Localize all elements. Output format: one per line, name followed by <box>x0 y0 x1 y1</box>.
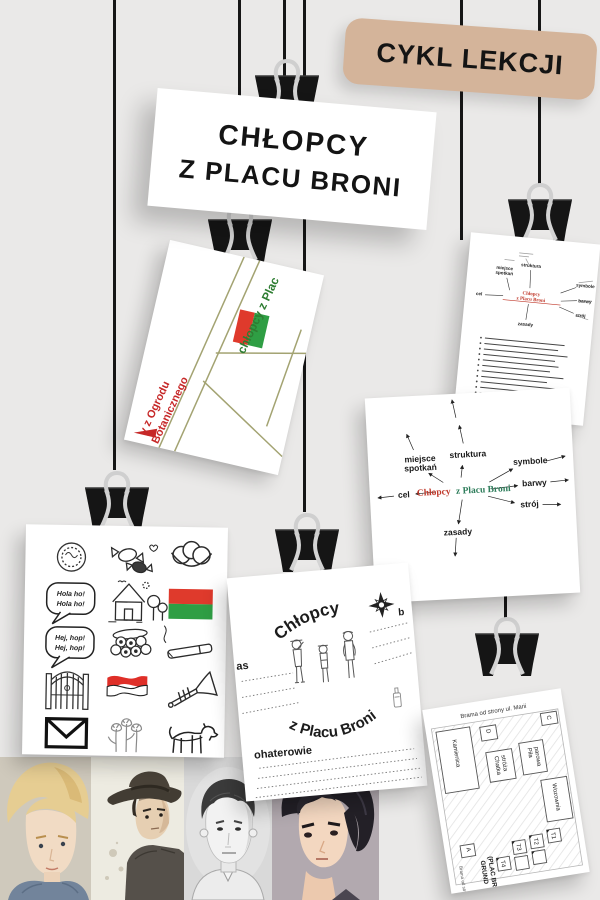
street-sketch: chłopcy z Plac y z Ogrodu Botanicznego <box>124 240 324 475</box>
compass-rose-icon <box>367 591 395 619</box>
blond-boy-portrait <box>0 757 91 900</box>
candies-icon <box>111 544 158 574</box>
trumpet-icon <box>163 672 217 709</box>
mindmap-spotkan: spotkań <box>495 270 513 277</box>
flag-red-green-icon <box>168 589 213 620</box>
poster-canvas: { "badge": { "label": "CYKL LEKCJI", "bg… <box>0 0 600 900</box>
badge-label: CYKL LEKCJI <box>375 37 564 81</box>
woodpile-icon <box>111 628 152 658</box>
worksheet-czas-label: as <box>236 660 249 673</box>
worksheet-letter-b: b <box>398 607 405 618</box>
dog-icon <box>169 723 217 754</box>
boy-with-hat-portrait <box>91 757 184 900</box>
svg-text:Chłopcy: Chłopcy <box>268 598 343 644</box>
worksheet-card: Chłopcy z Placu Broni <box>227 562 428 801</box>
eggs-nest-icon <box>171 541 211 566</box>
star-center-green: z Placu Broni <box>456 484 512 497</box>
worksheet-arc-top: Chłopcy <box>268 598 343 644</box>
mindmap-zasady: zasady <box>518 321 534 327</box>
worksheet-arc-bottom: z Placu Broni <box>285 706 381 745</box>
worksheet-bohaterowie-label: ohaterowie <box>254 745 313 762</box>
mindmap-symbole: symbole <box>576 283 595 290</box>
star-spotkan: spotkań <box>404 462 437 474</box>
lesson-cycle-badge: CYKL LEKCJI <box>342 17 598 100</box>
mindmap-struktura: struktura <box>521 262 542 269</box>
title-card: CHŁOPCY Z PLACU BRONI <box>147 88 436 230</box>
mindmap-stroj: strój <box>575 313 585 319</box>
plan-card: Brama od strony ul. Marii Kamienica D C … <box>422 688 589 894</box>
envelope-icon <box>46 719 86 748</box>
speech-hej-line1: Hej, hop! <box>55 635 86 643</box>
cigarette-icon <box>164 626 213 660</box>
house-icon <box>108 581 167 623</box>
star-cel: cel <box>398 489 410 500</box>
star-barwy: barwy <box>522 477 547 488</box>
star-struktura: struktura <box>449 448 487 460</box>
medal-icon <box>57 543 85 571</box>
title-line-2: Z PLACU BRONI <box>178 153 403 203</box>
boys-illustration <box>290 631 358 685</box>
svg-text:Chłopcy z Placu Broni: Chłopcy z Placu Broni <box>417 484 512 499</box>
star-center-red: Chłopcy <box>417 487 452 499</box>
mindmap-barwy: barwy <box>578 298 592 304</box>
star-symbole: symbole <box>513 455 548 467</box>
gate-icon <box>46 672 89 710</box>
street-sketch-card: chłopcy z Plac y z Ogrodu Botanicznego <box>124 240 324 475</box>
bottle-sketch-icon <box>393 688 402 708</box>
star-zasady: zasady <box>443 526 472 537</box>
flag-red-white-icon <box>107 675 147 696</box>
speech-hola-line2: Hola ho! <box>57 601 86 608</box>
speech-hola-line1: Hola ho! <box>57 591 86 598</box>
svg-text:z Placu Broni: z Placu Broni <box>285 706 381 745</box>
speech-hej-line2: Hej, hop! <box>55 645 86 653</box>
speech-bubble-hola-icon: Hola ho! Hola ho! <box>46 583 95 625</box>
tulips-icon <box>108 718 142 752</box>
hanging-string <box>113 0 116 470</box>
mindmap-center-2: z Placu Broni <box>516 296 546 304</box>
binder-clip <box>470 606 544 686</box>
grund-plan: Brama od strony ul. Marii Kamienica D C … <box>422 688 589 894</box>
speech-bubble-hej-icon: Hej, hop! Hej, hop! <box>46 627 95 669</box>
icons-card: Hola ho! Hola ho! Hej, hop! Hej, hop! <box>22 524 228 757</box>
mindmap-cel: cel <box>476 291 483 297</box>
icons-grid: Hola ho! Hola ho! Hej, hop! Hej, hop! <box>22 524 228 757</box>
worksheet: Chłopcy z Placu Broni <box>227 562 428 801</box>
title-line-1: CHŁOPCY <box>217 118 370 163</box>
star-stroj: strój <box>520 499 539 510</box>
